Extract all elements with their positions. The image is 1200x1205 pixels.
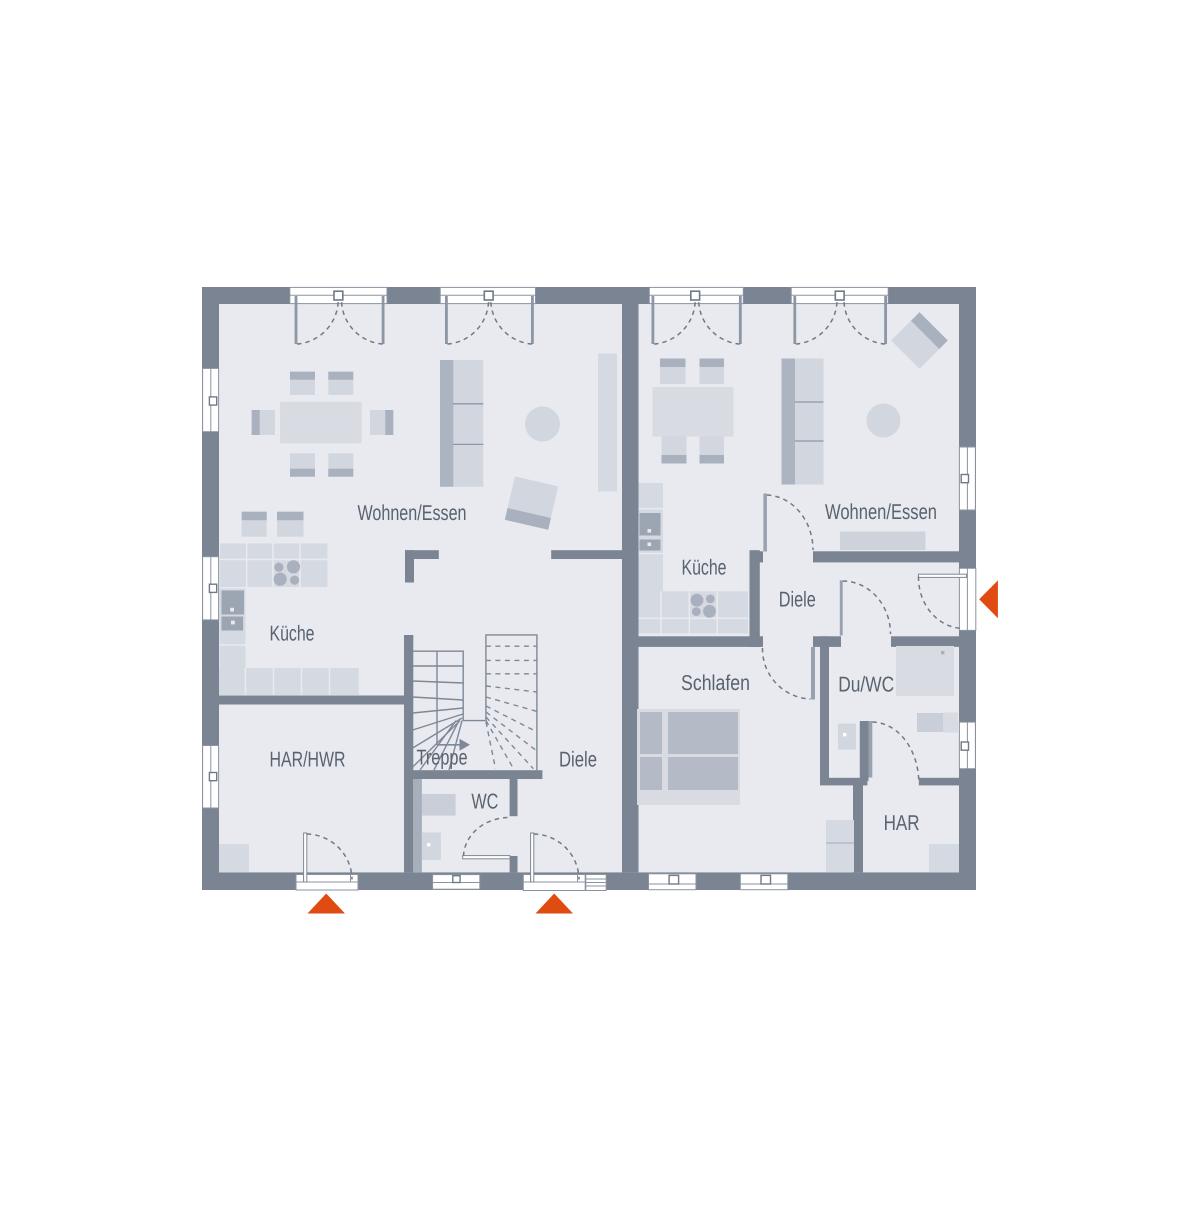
svg-text:Küche: Küche: [270, 622, 315, 646]
svg-text:HAR/HWR: HAR/HWR: [270, 748, 346, 772]
svg-text:Diele: Diele: [559, 748, 597, 772]
svg-text:HAR: HAR: [884, 811, 920, 835]
svg-text:Wohnen/Essen: Wohnen/Essen: [358, 501, 467, 525]
svg-text:Treppe: Treppe: [417, 746, 468, 770]
svg-text:Küche: Küche: [682, 556, 727, 580]
svg-text:Diele: Diele: [779, 588, 816, 612]
svg-text:Wohnen/Essen: Wohnen/Essen: [825, 500, 937, 524]
svg-text:Du/WC: Du/WC: [838, 673, 894, 697]
svg-text:Schlafen: Schlafen: [681, 671, 750, 695]
svg-text:WC: WC: [471, 790, 498, 814]
